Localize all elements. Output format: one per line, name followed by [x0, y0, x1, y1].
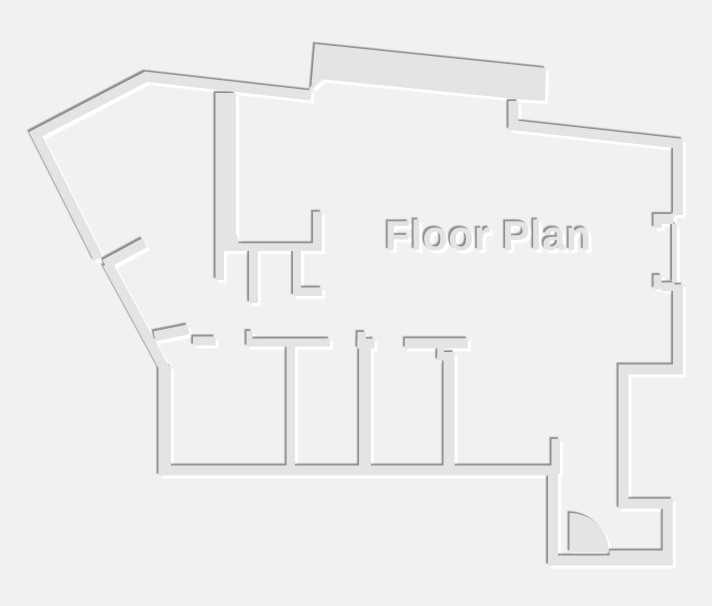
svg-text:Floor Plan: Floor Plan	[385, 212, 591, 259]
